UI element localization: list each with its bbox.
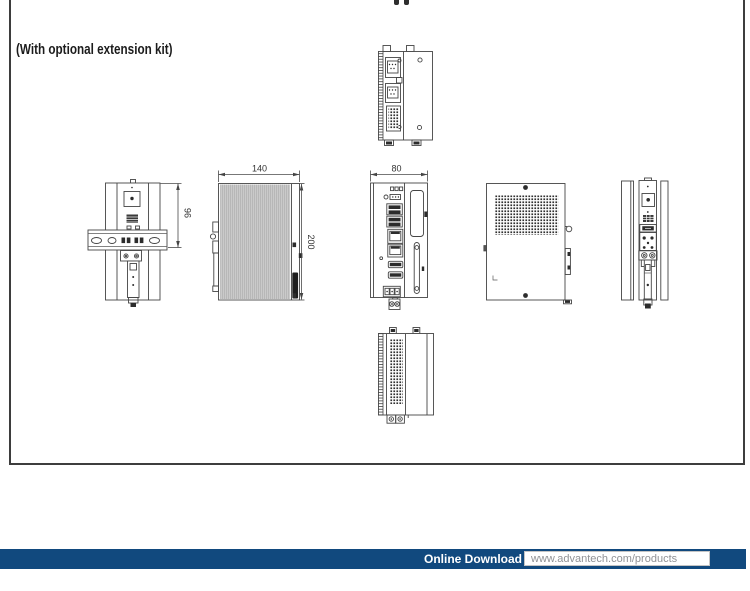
vent-strip — [390, 340, 403, 405]
din-rail — [88, 230, 167, 250]
fin-edge — [379, 334, 384, 416]
bottom-connectors — [387, 415, 404, 423]
dim-label-front-height: 200 — [306, 234, 316, 249]
vent-grille — [127, 215, 139, 224]
rail-clip-bracket — [565, 249, 570, 275]
rail-clip-hook — [565, 226, 572, 232]
vent-grid — [495, 196, 559, 236]
dim-label-rail-height: 96 — [183, 208, 193, 218]
terminal-header — [387, 106, 401, 131]
footer-download-label: Online Download — [424, 552, 522, 566]
dim-label-front-width: 140 — [252, 164, 267, 174]
dim-label-side-width: 80 — [391, 164, 401, 174]
footer-bar: Online Download www.advantech.com/produc… — [0, 549, 746, 569]
dimension-140: 140 — [219, 164, 300, 183]
din-rail-side-view — [88, 180, 167, 308]
right-side-view — [622, 178, 669, 309]
bottom-view — [379, 328, 434, 424]
top-view — [379, 46, 433, 146]
datasheet-page: (With optional extension kit) — [0, 0, 750, 591]
screw — [523, 185, 528, 190]
front-heatsink-view — [210, 184, 302, 301]
screw — [523, 293, 528, 298]
mount-clip — [407, 46, 415, 52]
footer-url: www.advantech.com/products — [524, 551, 710, 566]
technical-drawings: 96 140 — [0, 0, 750, 591]
dimension-80: 80 — [371, 164, 428, 182]
mount-clip — [383, 46, 391, 52]
rear-view — [484, 184, 572, 304]
din-clip-profile — [210, 222, 218, 292]
heatsink-fins — [221, 185, 291, 300]
bottom-connector — [389, 298, 400, 310]
io-panel-view — [371, 183, 428, 310]
dimension-200: 200 — [300, 184, 317, 301]
vent-grille — [643, 215, 654, 222]
fin-edge — [379, 52, 384, 141]
